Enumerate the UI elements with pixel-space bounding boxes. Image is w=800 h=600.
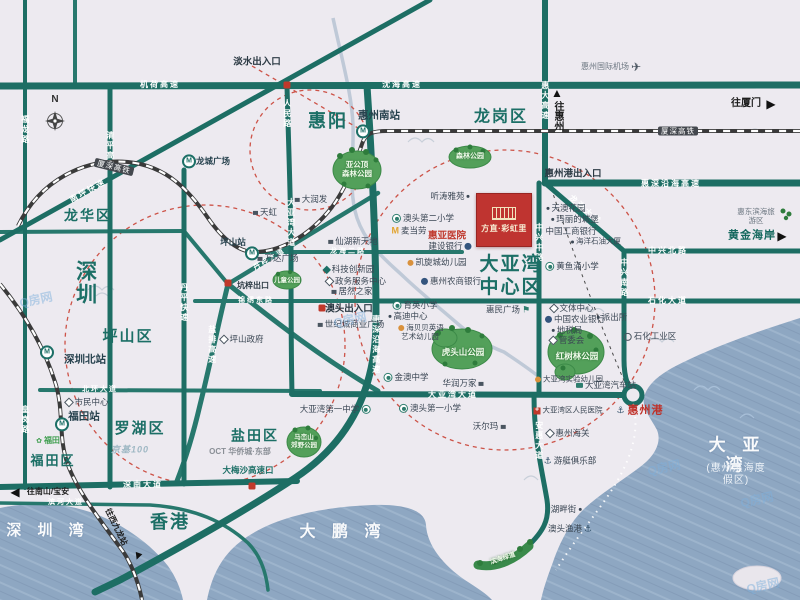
water-dapeng-bay-shape — [207, 505, 492, 600]
huizhou-port-roundabout — [624, 386, 642, 404]
water-shenzhen-bay-shape — [0, 504, 183, 600]
compass-icon — [45, 111, 65, 131]
island — [733, 566, 781, 590]
coastal-greenway — [477, 539, 533, 566]
project-marker: 方直·彩虹里 — [476, 193, 532, 247]
building-icon — [492, 207, 516, 220]
highlight-rings — [65, 66, 655, 485]
map-geometry — [0, 0, 800, 600]
location-map: 方直·彩虹里 龙岗区惠阳龙华区深圳坪山区罗湖区福田区盐田区香港大亚湾 中心区深 … — [0, 0, 800, 600]
project-name: 方直·彩虹里 — [481, 223, 527, 234]
rail-xiashen-hsr — [18, 131, 800, 252]
